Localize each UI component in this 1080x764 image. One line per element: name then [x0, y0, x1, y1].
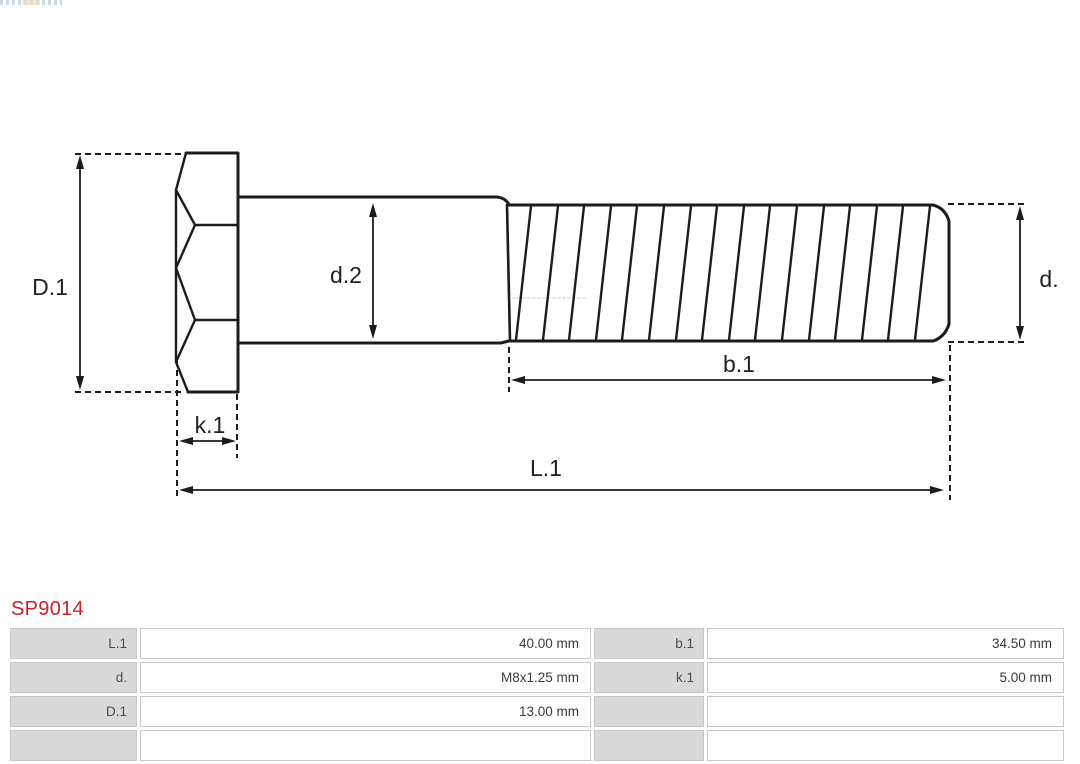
thread-hatching — [516, 206, 930, 340]
dim-b1-arrow-left — [511, 376, 525, 384]
dim-d-arrow-down — [1016, 326, 1024, 340]
spec-label — [594, 730, 704, 761]
label-thread-length: b.1 — [723, 351, 755, 377]
label-head-diameter: D.1 — [32, 274, 68, 300]
spec-label: D.1 — [10, 696, 137, 727]
spec-label — [594, 696, 704, 727]
part-number: SP9014 — [11, 598, 84, 621]
bolt-diagram: D.1 d.2 d. k.1 b.1 L.1 — [0, 0, 1080, 560]
spec-label: b.1 — [594, 628, 704, 659]
spec-value: 13.00 mm — [140, 696, 591, 727]
label-shank-diameter: d.2 — [330, 262, 362, 288]
dim-k1-arrow-left — [179, 437, 193, 445]
spec-label: k.1 — [594, 662, 704, 693]
label-total-length: L.1 — [530, 455, 562, 481]
spec-value: 40.00 mm — [140, 628, 591, 659]
table-row: L.1 40.00 mm b.1 34.50 mm — [10, 628, 1064, 659]
label-head-height: k.1 — [195, 412, 226, 438]
spec-label: d. — [10, 662, 137, 693]
spec-value: 5.00 mm — [707, 662, 1064, 693]
dim-L1-arrow-right — [930, 486, 944, 494]
dim-L1-arrow-left — [179, 486, 193, 494]
spec-value — [707, 696, 1064, 727]
bolt-head-outline — [186, 153, 238, 392]
dim-d2-arrow-down — [369, 325, 377, 339]
dim-D1-arrow-up — [76, 155, 84, 169]
dim-k1-arrow-right — [222, 437, 236, 445]
bolt-head-facet-arcs — [176, 153, 195, 392]
spec-table: L.1 40.00 mm b.1 34.50 mm d. M8x1.25 mm … — [7, 625, 1067, 764]
table-row: d. M8x1.25 mm k.1 5.00 mm — [10, 662, 1064, 693]
spec-label — [10, 730, 137, 761]
table-row: D.1 13.00 mm — [10, 696, 1064, 727]
table-row-clipped — [10, 730, 1064, 761]
dim-d-arrow-up — [1016, 206, 1024, 220]
dim-D1-arrow-down — [76, 376, 84, 390]
spec-value: 34.50 mm — [707, 628, 1064, 659]
spec-value — [707, 730, 1064, 761]
thread-start-edge — [507, 205, 510, 341]
product-drawing-page: { "part": { "number": "SP9014" }, "diagr… — [0, 0, 1080, 734]
label-thread-diameter: d. — [1039, 266, 1058, 292]
spec-value — [140, 730, 591, 761]
bolt-head — [176, 153, 238, 392]
spec-label: L.1 — [10, 628, 137, 659]
dim-b1-arrow-right — [932, 376, 946, 384]
dim-d2-arrow-up — [369, 203, 377, 217]
spec-value: M8x1.25 mm — [140, 662, 591, 693]
